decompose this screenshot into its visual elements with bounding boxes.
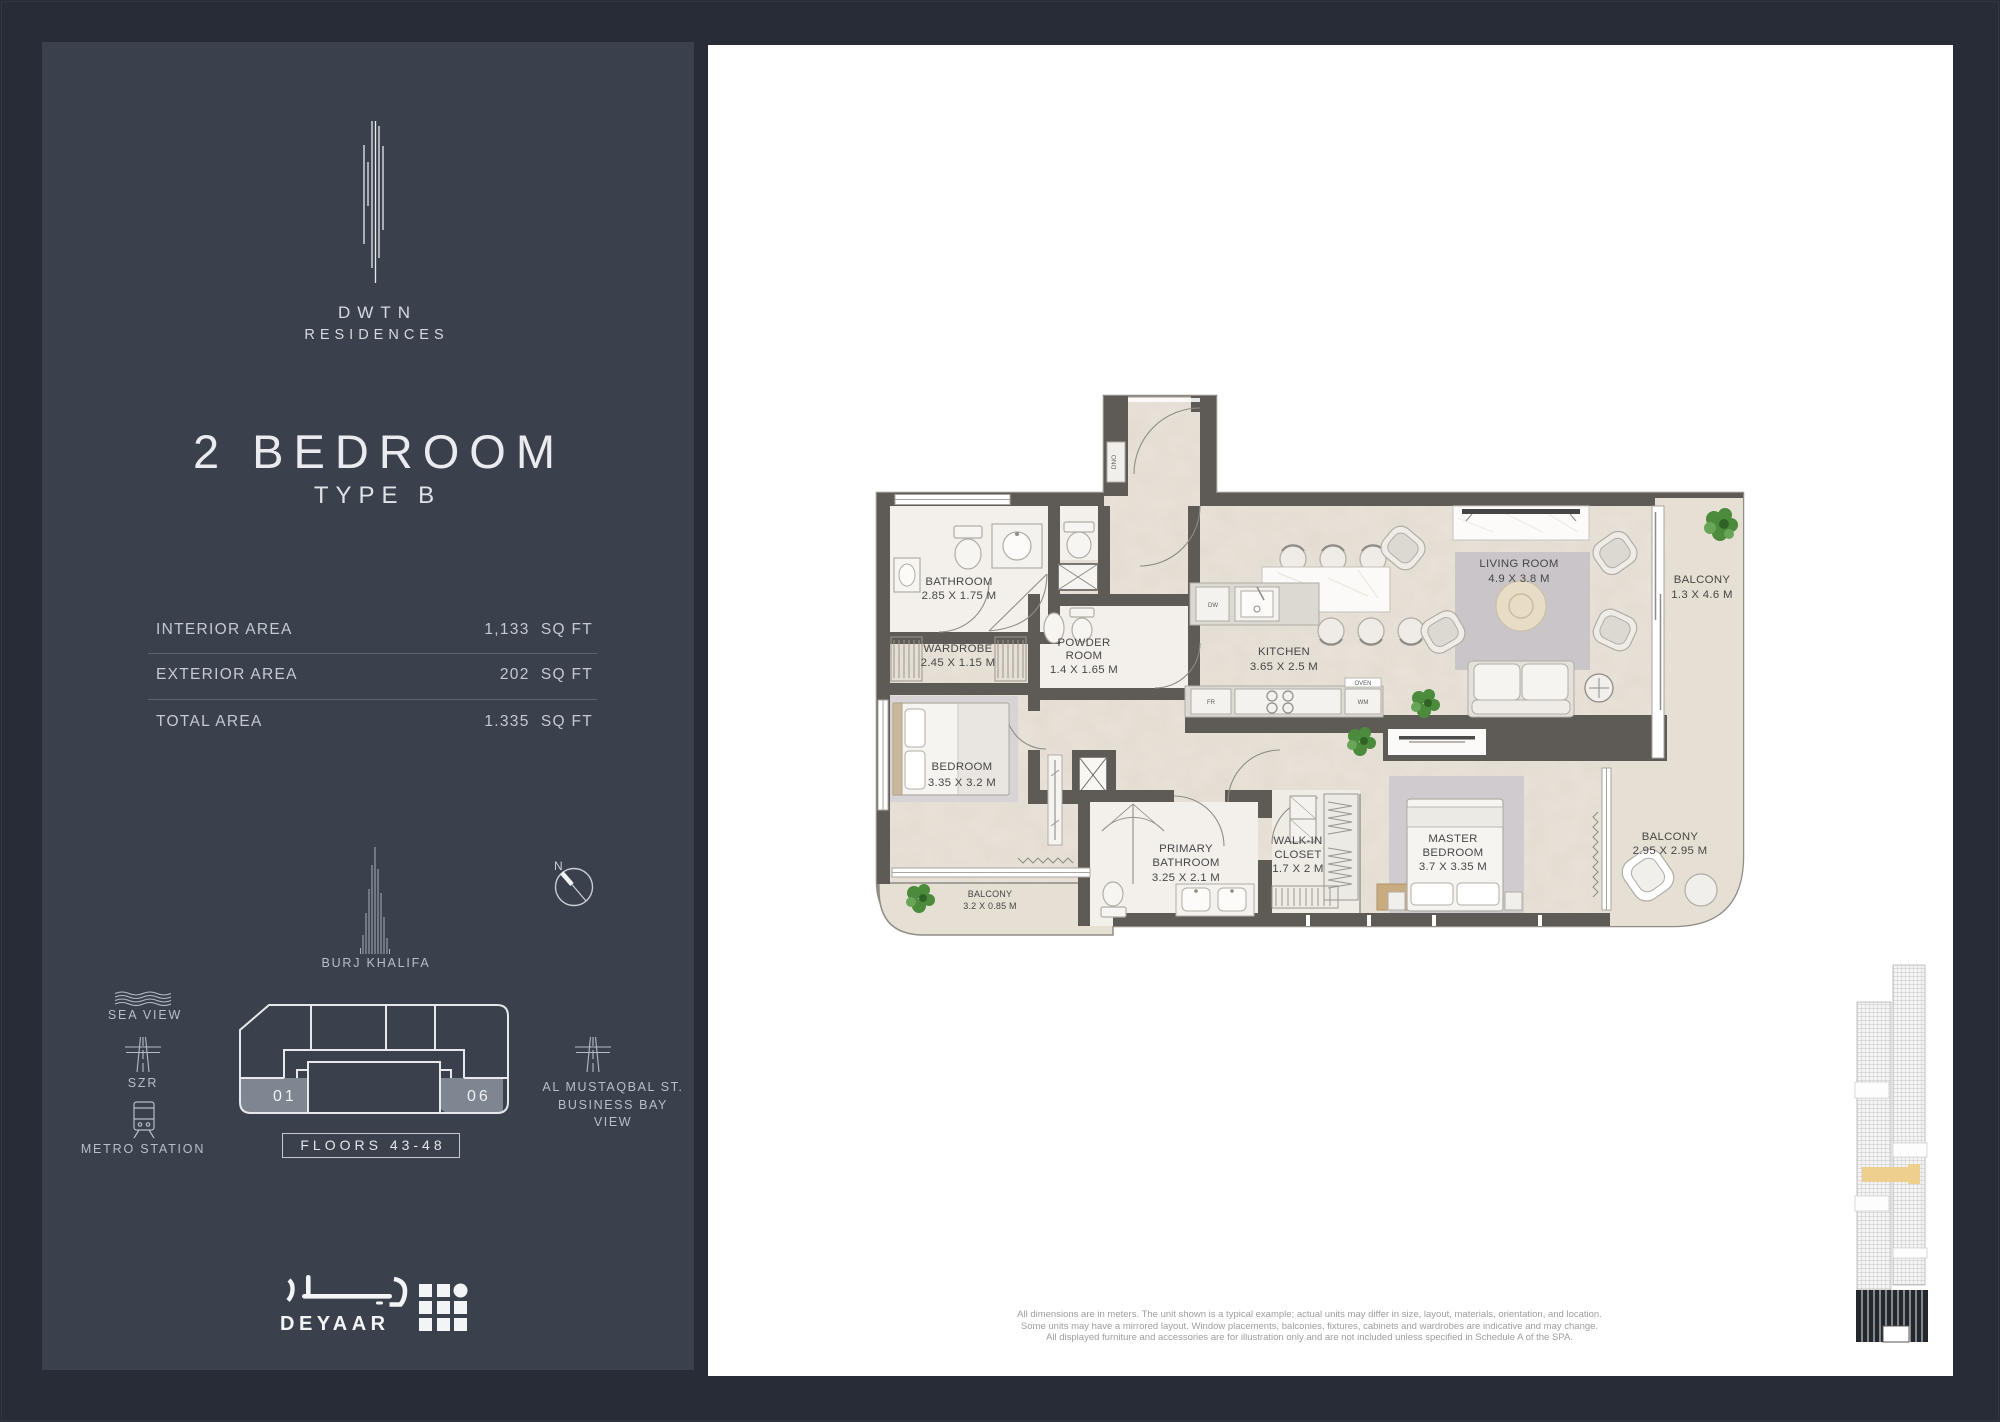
svg-text:3.2 X 0.85 M: 3.2 X 0.85 M <box>963 901 1016 911</box>
svg-text:3.25 X 2.1 M: 3.25 X 2.1 M <box>1152 872 1220 884</box>
svg-text:BATHROOM: BATHROOM <box>925 576 992 588</box>
svg-text:2.45 X 1.15 M: 2.45 X 1.15 M <box>921 657 996 669</box>
svg-text:BEDROOM: BEDROOM <box>1423 847 1484 859</box>
svg-text:2.85 X 1.75 M: 2.85 X 1.75 M <box>922 590 997 602</box>
svg-text:2.95 X 2.95 M: 2.95 X 2.95 M <box>1633 845 1708 857</box>
svg-text:CLOSET: CLOSET <box>1274 849 1321 861</box>
svg-text:BALCONY: BALCONY <box>968 889 1012 899</box>
svg-text:ROOM: ROOM <box>1066 650 1103 662</box>
svg-text:3.35 X 3.2 M: 3.35 X 3.2 M <box>928 777 996 789</box>
svg-text:1.7 X 2 M: 1.7 X 2 M <box>1272 863 1323 875</box>
svg-text:OVEN: OVEN <box>1354 681 1371 687</box>
svg-text:WALK-IN: WALK-IN <box>1273 835 1322 847</box>
svg-text:POWDER: POWDER <box>1057 637 1110 649</box>
svg-text:WARDROBE: WARDROBE <box>923 643 992 655</box>
svg-text:KITCHEN: KITCHEN <box>1258 646 1310 658</box>
svg-text:BEDROOM: BEDROOM <box>932 761 993 773</box>
svg-text:06: 06 <box>467 1088 491 1105</box>
svg-text:1.3 X 4.6 M: 1.3 X 4.6 M <box>1671 589 1733 601</box>
svg-text:3.7 X 3.35 M: 3.7 X 3.35 M <box>1419 861 1487 873</box>
svg-text:4.9 X 3.8 M: 4.9 X 3.8 M <box>1488 573 1550 585</box>
svg-text:LIVING ROOM: LIVING ROOM <box>1479 558 1558 570</box>
svg-text:BALCONY: BALCONY <box>1642 831 1699 843</box>
svg-text:MASTER: MASTER <box>1428 833 1477 845</box>
svg-text:3.65 X 2.5 M: 3.65 X 2.5 M <box>1250 661 1318 673</box>
svg-text:DW: DW <box>1208 603 1218 609</box>
svg-text:BALCONY: BALCONY <box>1674 574 1731 586</box>
svg-text:BATHROOM: BATHROOM <box>1152 857 1219 869</box>
svg-text:01: 01 <box>273 1088 297 1105</box>
svg-text:DEYAAR: DEYAAR <box>280 1313 390 1335</box>
svg-text:WM: WM <box>1358 700 1369 706</box>
svg-text:PRIMARY: PRIMARY <box>1159 843 1213 855</box>
svg-text:FR: FR <box>1207 700 1216 706</box>
svg-text:1.4 X 1.65 M: 1.4 X 1.65 M <box>1050 664 1118 676</box>
svg-text:DNO: DNO <box>1111 455 1118 469</box>
svg-text:N: N <box>554 859 563 873</box>
